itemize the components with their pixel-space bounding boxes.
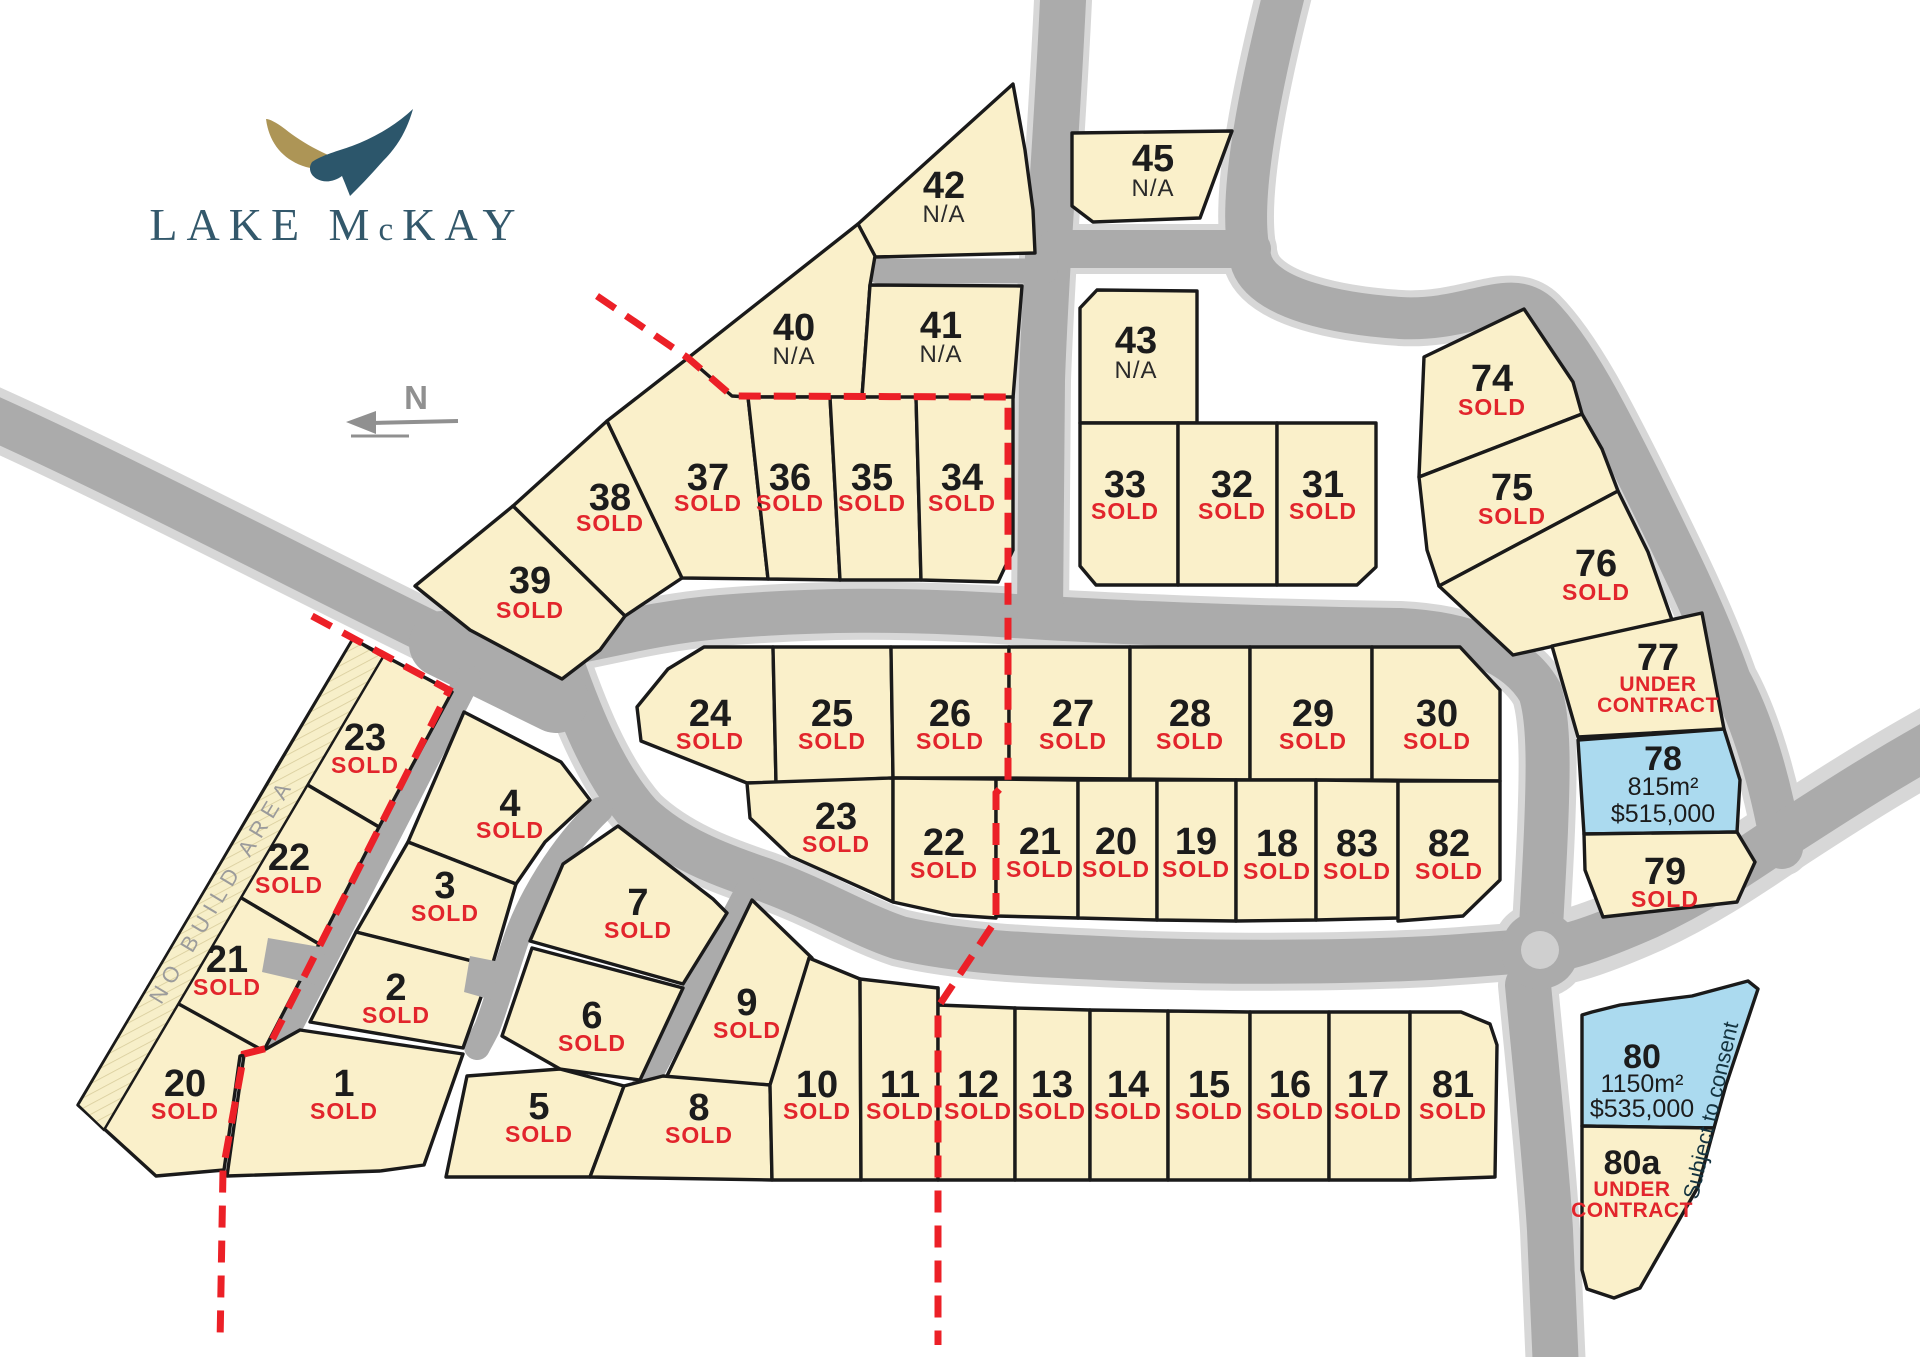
svg-text:SOLD: SOLD bbox=[1162, 856, 1230, 882]
svg-text:SOLD: SOLD bbox=[910, 857, 978, 883]
svg-text:CONTRACT: CONTRACT bbox=[1597, 694, 1719, 717]
svg-text:SOLD: SOLD bbox=[558, 1030, 626, 1056]
svg-text:N: N bbox=[404, 379, 428, 416]
svg-text:45: 45 bbox=[1132, 138, 1174, 180]
svg-text:UNDER: UNDER bbox=[1593, 1178, 1670, 1201]
svg-text:SOLD: SOLD bbox=[916, 728, 984, 754]
svg-text:SOLD: SOLD bbox=[798, 728, 866, 754]
svg-text:SOLD: SOLD bbox=[1458, 394, 1526, 420]
svg-text:SOLD: SOLD bbox=[1415, 858, 1483, 884]
svg-text:SOLD: SOLD bbox=[476, 817, 544, 843]
svg-text:SOLD: SOLD bbox=[665, 1122, 733, 1148]
svg-text:SOLD: SOLD bbox=[505, 1121, 573, 1147]
svg-text:SOLD: SOLD bbox=[928, 490, 996, 516]
svg-text:N/A: N/A bbox=[919, 341, 962, 368]
svg-text:SOLD: SOLD bbox=[1631, 886, 1699, 912]
svg-text:SOLD: SOLD bbox=[193, 974, 261, 1000]
svg-text:SOLD: SOLD bbox=[576, 510, 644, 536]
svg-text:SOLD: SOLD bbox=[1334, 1098, 1402, 1124]
svg-text:SOLD: SOLD bbox=[1094, 1098, 1162, 1124]
svg-text:N/A: N/A bbox=[922, 201, 965, 228]
svg-text:SOLD: SOLD bbox=[866, 1098, 934, 1124]
svg-text:SOLD: SOLD bbox=[1243, 858, 1311, 884]
svg-text:SOLD: SOLD bbox=[783, 1098, 851, 1124]
svg-text:UNDER: UNDER bbox=[1619, 673, 1696, 696]
svg-text:N/A: N/A bbox=[1131, 175, 1174, 202]
svg-text:SOLD: SOLD bbox=[151, 1098, 219, 1124]
svg-text:1150m²: 1150m² bbox=[1601, 1070, 1684, 1098]
svg-text:SOLD: SOLD bbox=[674, 490, 742, 516]
svg-text:SOLD: SOLD bbox=[331, 752, 399, 778]
svg-text:SOLD: SOLD bbox=[1256, 1098, 1324, 1124]
svg-text:SOLD: SOLD bbox=[1156, 728, 1224, 754]
svg-text:CONTRACT: CONTRACT bbox=[1571, 1199, 1693, 1222]
svg-text:SOLD: SOLD bbox=[1039, 728, 1107, 754]
svg-text:$535,000: $535,000 bbox=[1590, 1095, 1694, 1123]
svg-text:SOLD: SOLD bbox=[838, 490, 906, 516]
svg-text:SOLD: SOLD bbox=[411, 900, 479, 926]
svg-text:SOLD: SOLD bbox=[1279, 728, 1347, 754]
svg-text:SOLD: SOLD bbox=[1478, 503, 1546, 529]
svg-text:SOLD: SOLD bbox=[1562, 579, 1630, 605]
svg-text:SOLD: SOLD bbox=[1419, 1098, 1487, 1124]
svg-text:SOLD: SOLD bbox=[1323, 858, 1391, 884]
svg-text:SOLD: SOLD bbox=[676, 728, 744, 754]
svg-text:SOLD: SOLD bbox=[362, 1002, 430, 1028]
svg-text:815m²: 815m² bbox=[1628, 773, 1699, 801]
svg-text:SOLD: SOLD bbox=[944, 1098, 1012, 1124]
svg-text:N/A: N/A bbox=[1114, 357, 1157, 384]
svg-text:SOLD: SOLD bbox=[496, 597, 564, 623]
svg-text:$515,000: $515,000 bbox=[1611, 800, 1715, 828]
svg-text:SOLD: SOLD bbox=[1175, 1098, 1243, 1124]
svg-text:39: 39 bbox=[509, 560, 551, 602]
svg-text:SOLD: SOLD bbox=[1082, 856, 1150, 882]
svg-text:SOLD: SOLD bbox=[604, 917, 672, 943]
svg-text:LAKE McKAY: LAKE McKAY bbox=[149, 199, 524, 250]
svg-text:SOLD: SOLD bbox=[310, 1098, 378, 1124]
svg-text:SOLD: SOLD bbox=[756, 490, 824, 516]
svg-text:SOLD: SOLD bbox=[713, 1017, 781, 1043]
svg-text:SOLD: SOLD bbox=[1006, 856, 1074, 882]
svg-text:SOLD: SOLD bbox=[1018, 1098, 1086, 1124]
svg-text:SOLD: SOLD bbox=[1198, 498, 1266, 524]
svg-text:SOLD: SOLD bbox=[1091, 498, 1159, 524]
svg-text:80a: 80a bbox=[1604, 1144, 1662, 1182]
svg-text:SOLD: SOLD bbox=[802, 831, 870, 857]
svg-text:SOLD: SOLD bbox=[255, 872, 323, 898]
svg-text:N/A: N/A bbox=[772, 343, 815, 370]
svg-text:SOLD: SOLD bbox=[1403, 728, 1471, 754]
svg-text:43: 43 bbox=[1115, 320, 1157, 362]
svg-text:SOLD: SOLD bbox=[1289, 498, 1357, 524]
